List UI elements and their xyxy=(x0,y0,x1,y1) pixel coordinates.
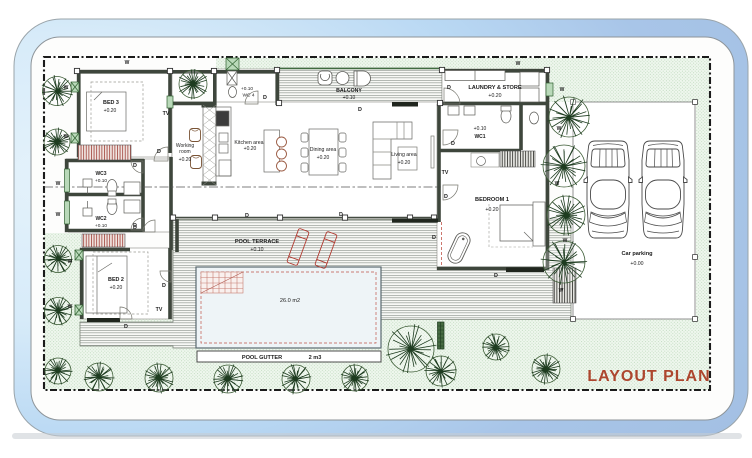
svg-text:room: room xyxy=(179,149,190,155)
svg-text:+0.20: +0.20 xyxy=(488,93,501,99)
svg-text:WC 4: WC 4 xyxy=(243,93,255,99)
svg-text:W: W xyxy=(68,304,73,310)
svg-text:D: D xyxy=(358,107,362,113)
svg-text:W: W xyxy=(56,212,61,218)
svg-text:+0.20: +0.20 xyxy=(104,108,117,114)
svg-text:+0.20: +0.20 xyxy=(317,155,330,161)
svg-text:BEDROOM 1: BEDROOM 1 xyxy=(475,197,509,203)
svg-text:D: D xyxy=(124,324,128,330)
svg-text:D: D xyxy=(133,223,137,229)
svg-text:W: W xyxy=(563,238,568,244)
svg-text:W: W xyxy=(516,61,521,67)
svg-text:+0.20: +0.20 xyxy=(244,146,257,152)
svg-text:W: W xyxy=(560,87,565,93)
svg-text:D: D xyxy=(339,212,343,218)
svg-text:D: D xyxy=(133,163,137,169)
svg-text:TV: TV xyxy=(163,111,170,117)
svg-text:Living area: Living area xyxy=(391,152,416,158)
svg-text:26.0 m2: 26.0 m2 xyxy=(280,298,300,304)
svg-text:POOL GUTTER: POOL GUTTER xyxy=(242,355,282,361)
svg-text:TV: TV xyxy=(442,170,449,176)
svg-text:W: W xyxy=(559,288,564,294)
svg-text:+0.10: +0.10 xyxy=(343,95,356,101)
svg-text:+0.00: +0.00 xyxy=(630,261,643,267)
svg-text:Car parking: Car parking xyxy=(621,251,653,257)
svg-text:WC2: WC2 xyxy=(95,216,106,222)
svg-text:D: D xyxy=(444,194,448,200)
svg-text:W: W xyxy=(125,60,130,66)
svg-text:D: D xyxy=(157,149,161,155)
svg-text:2 m3: 2 m3 xyxy=(309,355,322,361)
svg-text:W: W xyxy=(64,134,69,140)
svg-text:D: D xyxy=(447,85,451,91)
svg-text:W: W xyxy=(68,259,73,265)
svg-text:W: W xyxy=(64,85,69,91)
svg-text:+0.20: +0.20 xyxy=(179,157,192,163)
svg-text:LAYOUT PLAN: LAYOUT PLAN xyxy=(587,368,710,385)
svg-text:W: W xyxy=(555,181,560,187)
svg-text:+0.10: +0.10 xyxy=(474,126,487,132)
svg-text:+0.10: +0.10 xyxy=(95,223,107,229)
svg-text:D: D xyxy=(451,141,455,147)
svg-text:+0.20: +0.20 xyxy=(485,207,498,213)
svg-text:+0.10: +0.10 xyxy=(250,247,263,253)
svg-text:BALCONY: BALCONY xyxy=(336,88,362,94)
svg-text:D: D xyxy=(494,273,498,279)
svg-text:+0.10: +0.10 xyxy=(95,178,107,184)
svg-text:BED 3: BED 3 xyxy=(103,100,119,106)
svg-text:WC3: WC3 xyxy=(95,171,106,177)
svg-text:D: D xyxy=(162,283,166,289)
svg-text:D: D xyxy=(263,95,267,101)
svg-text:LAUNDRY & STORE: LAUNDRY & STORE xyxy=(468,85,522,91)
svg-text:POOL TERRACE: POOL TERRACE xyxy=(235,239,280,245)
svg-text:+0.20: +0.20 xyxy=(398,160,411,166)
svg-text:WC1: WC1 xyxy=(474,134,485,140)
svg-text:+0.10: +0.10 xyxy=(241,86,253,92)
svg-text:+0.20: +0.20 xyxy=(110,285,123,291)
svg-text:W: W xyxy=(56,181,61,187)
svg-text:TV: TV xyxy=(156,307,163,313)
svg-text:W: W xyxy=(557,126,562,132)
svg-text:Dining area: Dining area xyxy=(310,147,337,153)
svg-text:D: D xyxy=(245,213,249,219)
svg-text:BED 2: BED 2 xyxy=(108,277,124,283)
svg-text:D: D xyxy=(432,235,436,241)
